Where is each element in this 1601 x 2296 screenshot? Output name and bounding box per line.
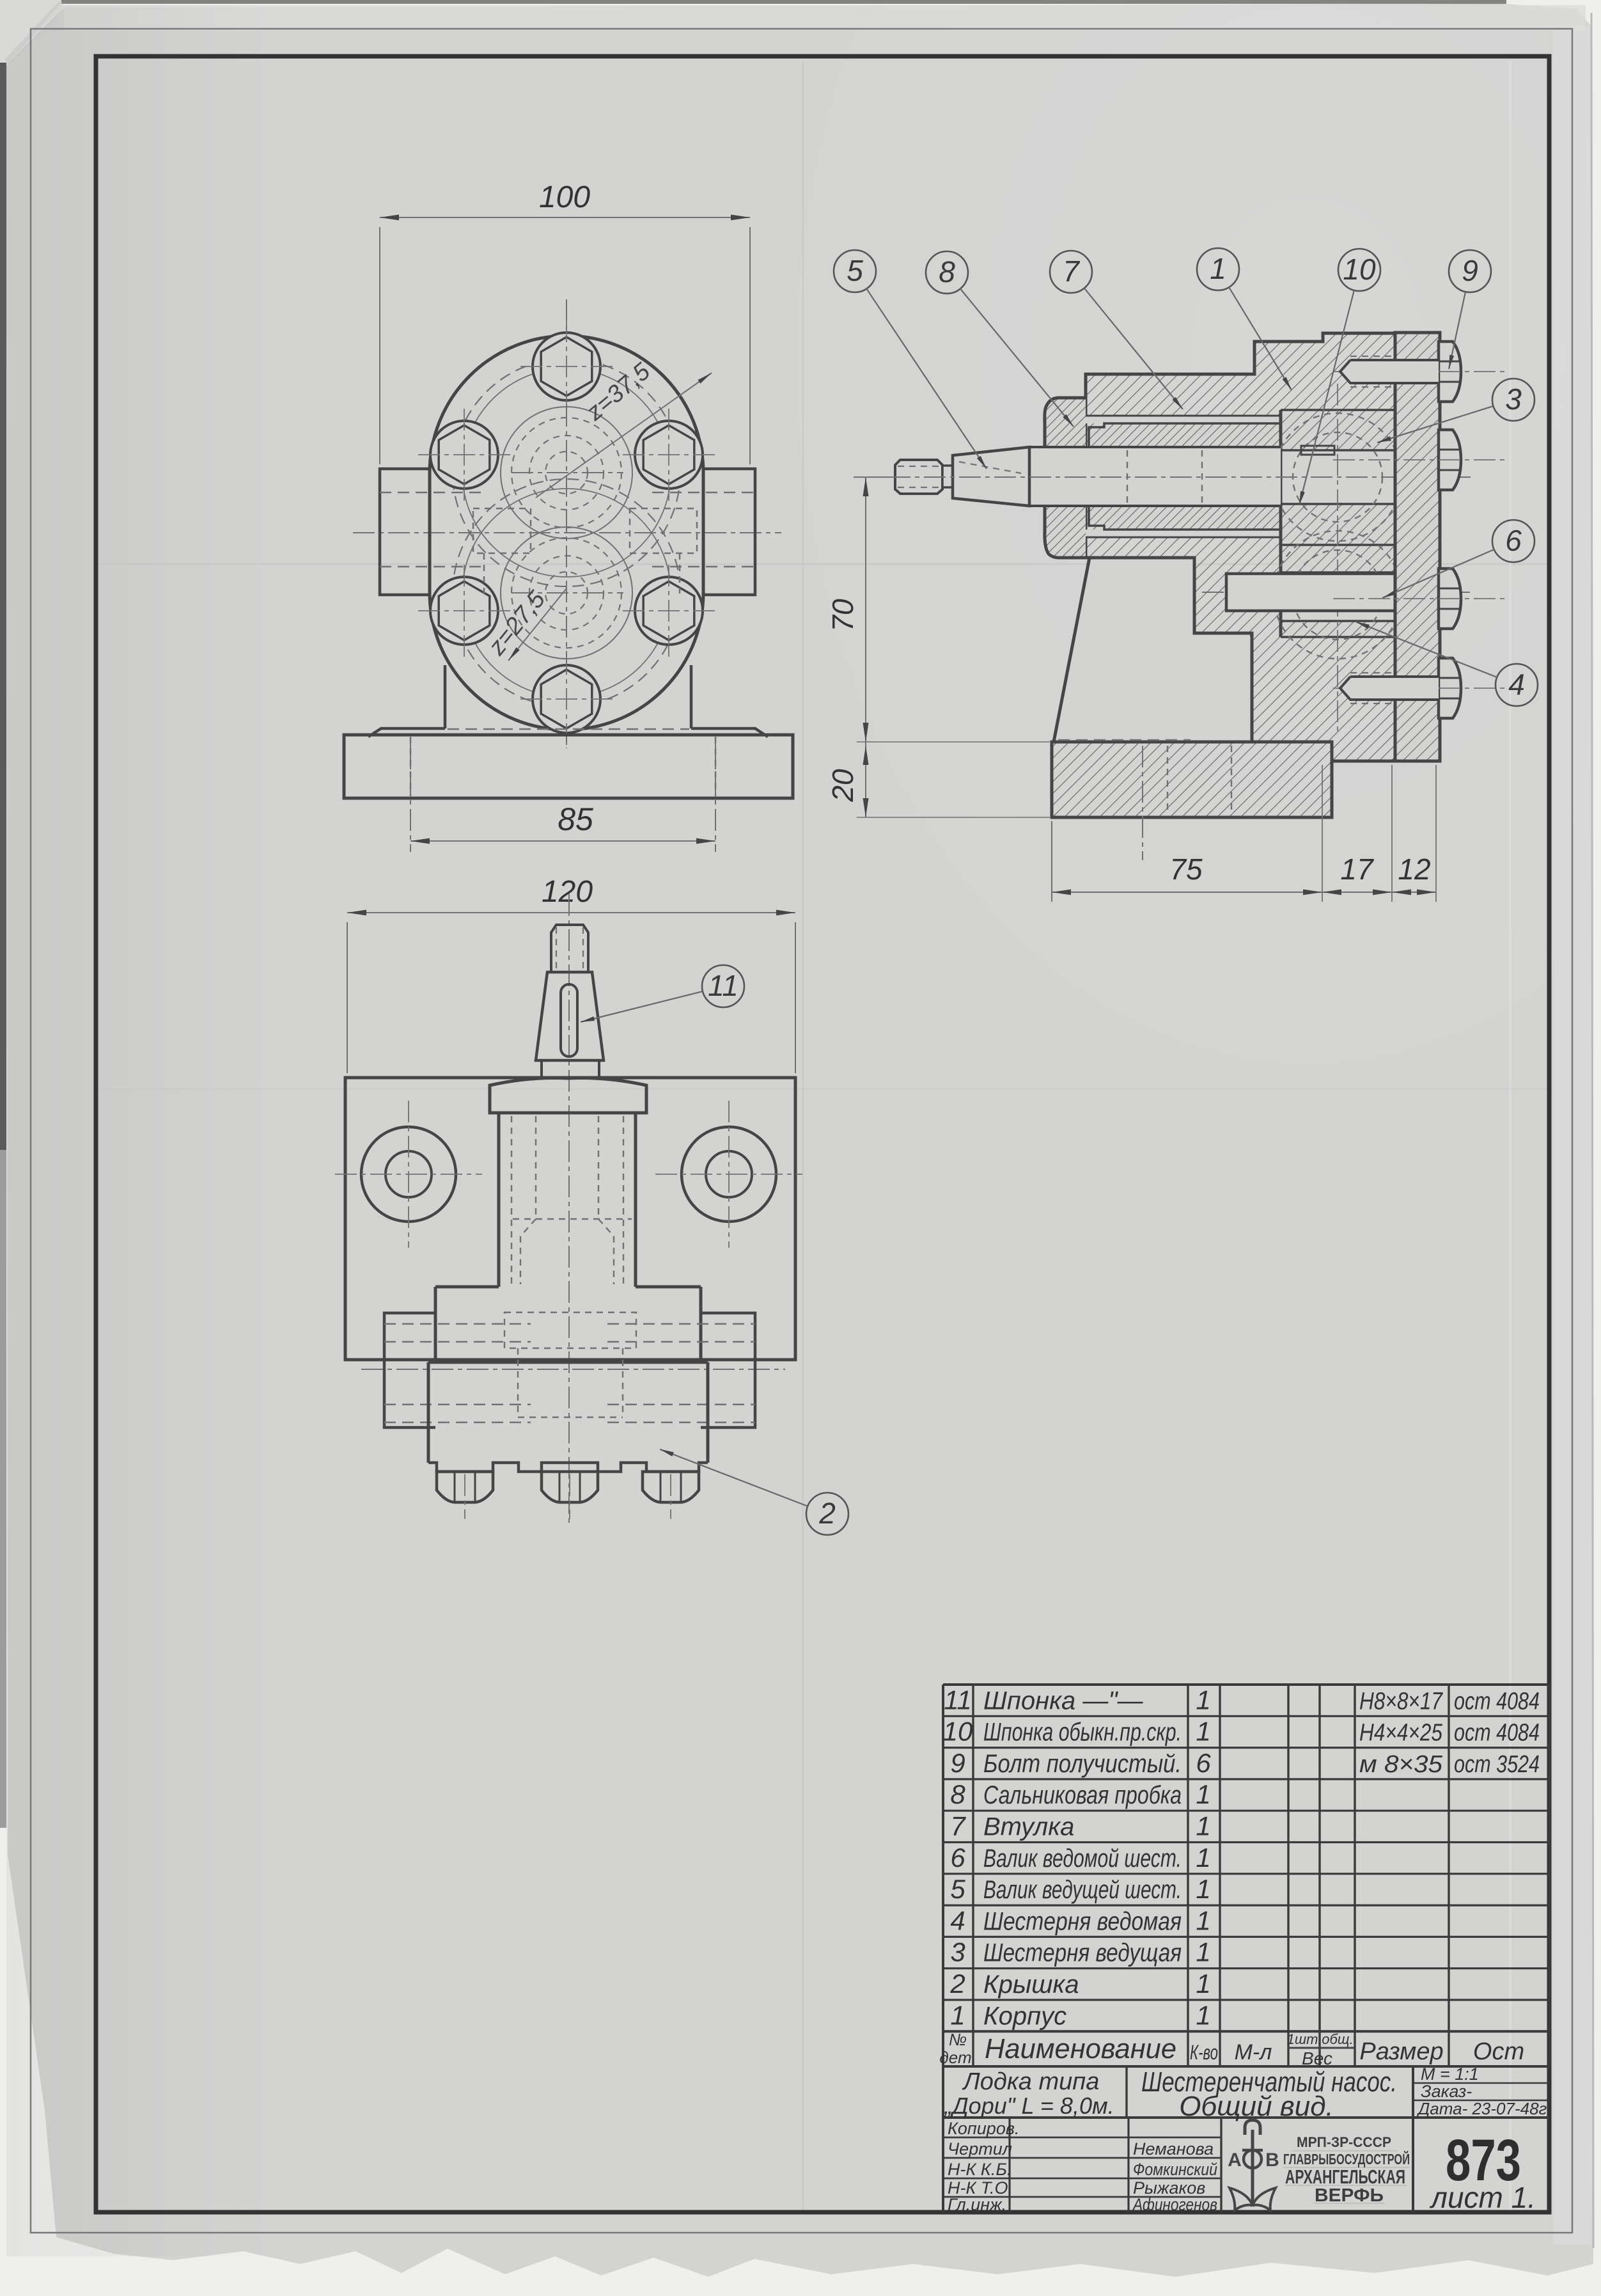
svg-text:К-во: К-во	[1190, 2041, 1218, 2064]
svg-text:3: 3	[950, 1937, 965, 1967]
svg-text:6: 6	[1505, 524, 1522, 557]
svg-text:В: В	[1265, 2150, 1279, 2171]
svg-text:1: 1	[950, 2000, 965, 2030]
svg-text:лист 1.: лист 1.	[1429, 2181, 1536, 2214]
svg-text:20: 20	[826, 769, 859, 803]
svg-text:1: 1	[1196, 1937, 1210, 1967]
svg-text:120: 120	[542, 875, 593, 909]
svg-text:Шпонка обыкн.пр.скр.: Шпонка обыкн.пр.скр.	[983, 1718, 1182, 1747]
svg-text:Фомкинский: Фомкинский	[1133, 2160, 1217, 2179]
svg-text:Дата- 23-07-48г.: Дата- 23-07-48г.	[1416, 2099, 1552, 2118]
svg-text:ост 4084: ост 4084	[1454, 1720, 1540, 1747]
svg-text:1: 1	[1196, 1779, 1210, 1809]
svg-text:общ.: общ.	[1322, 2031, 1353, 2047]
svg-text:1: 1	[1196, 1843, 1210, 1873]
svg-text:10: 10	[943, 1717, 973, 1747]
svg-text:Копиров.: Копиров.	[948, 2119, 1019, 2138]
svg-text:1шт.: 1шт.	[1287, 2031, 1322, 2047]
svg-text:Общий вид.: Общий вид.	[1179, 2091, 1334, 2122]
svg-text:Шестерня ведомая: Шестерня ведомая	[983, 1907, 1182, 1935]
svg-text:МРП-ЗР-СССР: МРП-ЗР-СССР	[1297, 2134, 1391, 2150]
svg-text:5: 5	[847, 254, 863, 287]
svg-text:9: 9	[950, 1748, 965, 1778]
svg-text:Н8×8×17: Н8×8×17	[1359, 1688, 1444, 1715]
svg-text:1: 1	[1196, 1717, 1210, 1747]
svg-text:Корпус: Корпус	[983, 2002, 1066, 2030]
svg-text:1: 1	[1196, 1874, 1210, 1904]
svg-text:Лодка типа: Лодка типа	[962, 2068, 1100, 2095]
svg-text:2: 2	[949, 1969, 965, 1999]
svg-text:11: 11	[944, 1685, 972, 1715]
svg-text:Валик ведущей шест.: Валик ведущей шест.	[983, 1876, 1182, 1904]
svg-text:3: 3	[1505, 382, 1522, 416]
svg-text:м 8×35: м 8×35	[1359, 1751, 1443, 1778]
svg-text:1: 1	[1196, 1811, 1210, 1841]
svg-text:„Дори" L = 8,0м.: „Дори" L = 8,0м.	[943, 2093, 1114, 2119]
svg-text:Н-К К.Б.: Н-К К.Б.	[948, 2160, 1011, 2179]
svg-text:9: 9	[1462, 254, 1478, 287]
svg-text:17: 17	[1340, 853, 1374, 886]
svg-text:7: 7	[950, 1811, 966, 1841]
svg-text:4: 4	[1508, 668, 1525, 701]
svg-text:Заказ-: Заказ-	[1421, 2082, 1472, 2101]
svg-text:Крышка: Крышка	[983, 1970, 1079, 1999]
svg-text:1: 1	[1196, 2000, 1210, 2030]
svg-text:ост 3524: ост 3524	[1454, 1751, 1540, 1778]
svg-text:№: №	[949, 2030, 967, 2049]
svg-text:Размер: Размер	[1359, 2038, 1443, 2065]
svg-text:Афиногенов: Афиногенов	[1132, 2195, 1217, 2214]
svg-text:7: 7	[1063, 255, 1080, 288]
svg-text:6: 6	[1196, 1748, 1211, 1778]
svg-text:12: 12	[1398, 853, 1430, 886]
svg-text:ГЛАВРЫБОСУДОСТРОЙ: ГЛАВРЫБОСУДОСТРОЙ	[1283, 2150, 1410, 2167]
svg-text:Наименование: Наименование	[985, 2033, 1176, 2064]
svg-text:5: 5	[950, 1874, 965, 1904]
svg-text:Сальниковая пробка: Сальниковая пробка	[983, 1781, 1182, 1809]
svg-text:100: 100	[539, 180, 590, 214]
svg-text:М = 1:1: М = 1:1	[1421, 2064, 1479, 2084]
svg-text:ВЕРФЬ: ВЕРФЬ	[1315, 2185, 1384, 2206]
svg-text:75: 75	[1169, 853, 1203, 886]
svg-text:8: 8	[950, 1779, 965, 1809]
svg-text:Втулка: Втулка	[983, 1813, 1074, 1841]
svg-text:дет.: дет.	[939, 2048, 976, 2067]
svg-text:Чертил: Чертил	[948, 2139, 1012, 2158]
svg-text:1: 1	[1196, 1685, 1210, 1715]
svg-text:70: 70	[826, 599, 859, 632]
svg-text:Валик ведомой шест.: Валик ведомой шест.	[983, 1844, 1182, 1873]
svg-text:85: 85	[558, 801, 593, 837]
svg-text:1: 1	[1210, 252, 1226, 285]
svg-text:10: 10	[1343, 253, 1376, 286]
svg-text:Ост: Ост	[1473, 2038, 1524, 2065]
svg-text:Вес: Вес	[1302, 2048, 1332, 2068]
svg-text:М-л: М-л	[1235, 2040, 1272, 2064]
svg-text:Шестерня ведущая: Шестерня ведущая	[983, 1939, 1182, 1967]
svg-text:А: А	[1228, 2150, 1242, 2171]
svg-text:8: 8	[939, 255, 955, 288]
svg-text:Н4×4×25: Н4×4×25	[1359, 1720, 1443, 1747]
svg-text:6: 6	[950, 1843, 965, 1873]
svg-text:Неманова: Неманова	[1133, 2139, 1214, 2158]
svg-text:Болт получистый.: Болт получистый.	[983, 1750, 1182, 1778]
svg-text:2: 2	[818, 1497, 836, 1530]
svg-text:1: 1	[1196, 1969, 1210, 1999]
svg-text:4: 4	[950, 1905, 965, 1935]
svg-text:11: 11	[708, 969, 738, 1002]
svg-text:1: 1	[1196, 1905, 1210, 1935]
svg-text:АРХАНГЕЛЬСКАЯ: АРХАНГЕЛЬСКАЯ	[1285, 2166, 1405, 2188]
svg-text:Шпонка —"—: Шпонка —"—	[983, 1687, 1144, 1715]
svg-text:Гл.инж.: Гл.инж.	[948, 2195, 1006, 2214]
svg-text:ост 4084: ост 4084	[1454, 1688, 1540, 1715]
